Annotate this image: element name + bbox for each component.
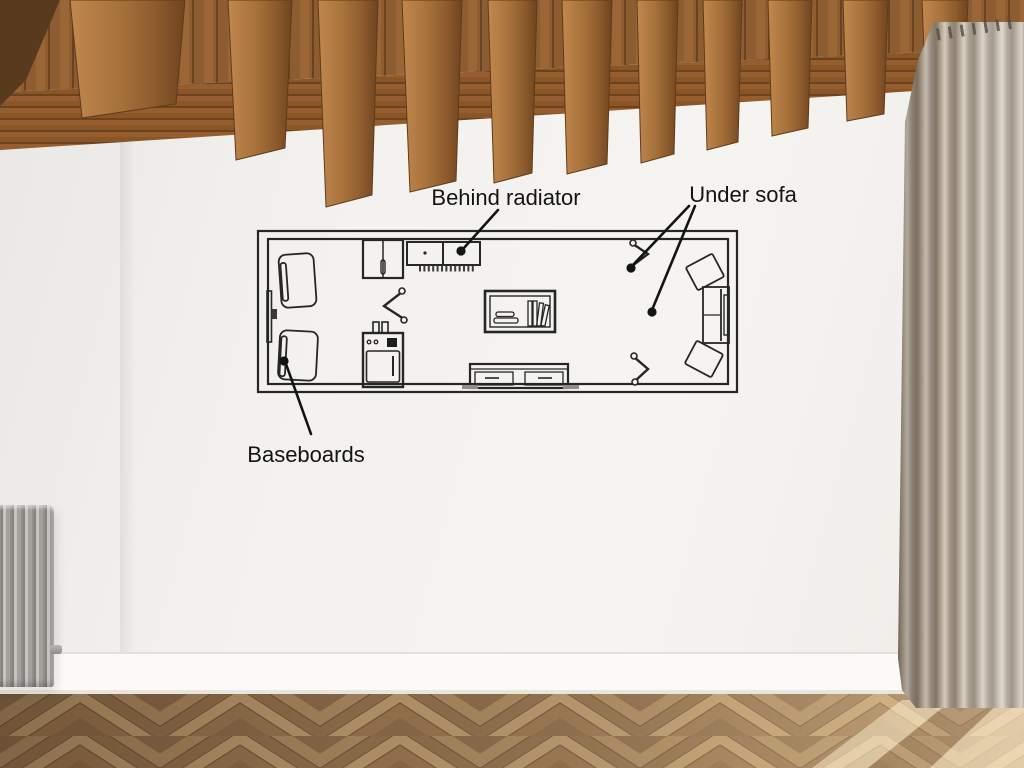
annotation-under-sofa: Under sofa bbox=[626, 182, 797, 317]
under-sofa-marker-dot-2 bbox=[647, 307, 656, 316]
under-sofa-marker-dot-1 bbox=[626, 263, 635, 272]
plan-radiator bbox=[407, 242, 480, 269]
baseboard bbox=[0, 652, 1024, 698]
herringbone-floor bbox=[0, 694, 1024, 768]
plan-armchair-top bbox=[278, 253, 317, 308]
floor-plan-drawing: Behind radiator Under sofa Baseboards bbox=[240, 160, 820, 480]
plan-bookshelf bbox=[485, 291, 555, 332]
radiator bbox=[0, 505, 54, 687]
plan-bracket-bottom-right bbox=[631, 353, 648, 385]
annotation-baseboards: Baseboards bbox=[247, 356, 364, 467]
annotation-behind-radiator: Behind radiator bbox=[431, 185, 580, 256]
behind-radiator-marker-dot bbox=[456, 246, 465, 255]
room-photo: Behind radiator Under sofa Baseboards bbox=[0, 0, 1024, 768]
curtain bbox=[898, 22, 1024, 708]
radiator-pipe bbox=[50, 645, 62, 654]
plan-wall-outlet bbox=[272, 309, 278, 319]
behind-radiator-label: Behind radiator bbox=[431, 185, 580, 210]
baseboards-leader-line bbox=[286, 364, 311, 434]
under-sofa-label: Under sofa bbox=[689, 182, 797, 207]
under-sofa-leader-line-1 bbox=[632, 206, 689, 266]
plan-sofa bbox=[685, 253, 729, 377]
baseboards-label: Baseboards bbox=[247, 442, 364, 467]
plan-cabinet bbox=[363, 240, 403, 278]
wall-corner-shadow bbox=[120, 140, 136, 660]
plan-bracket-left bbox=[384, 288, 407, 323]
plan-armchair-bottom bbox=[278, 330, 319, 381]
plan-stove bbox=[363, 322, 403, 387]
plan-door-panel bbox=[267, 291, 272, 342]
